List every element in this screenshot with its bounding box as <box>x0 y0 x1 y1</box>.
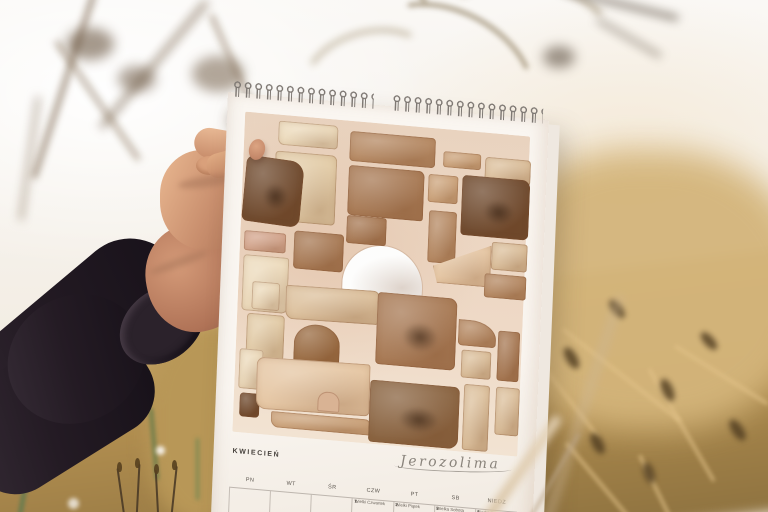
watercolor-shape <box>346 215 387 246</box>
watercolor-shape <box>462 384 491 452</box>
watercolor-shape <box>496 330 520 382</box>
watercolor-shape <box>349 131 436 169</box>
month-title: KWIECIEŃ <box>232 448 280 459</box>
seed-cluster <box>118 66 156 92</box>
watercolor-shape <box>484 273 527 301</box>
watercolor-shape <box>285 285 379 326</box>
day-cell: 1 Wielki Czwartek <box>352 498 394 512</box>
day-cell <box>311 495 353 512</box>
notch-shape <box>317 391 340 413</box>
watercolor-shape <box>244 230 287 254</box>
foreground-seed-head <box>117 462 122 472</box>
watercolor-shape <box>256 357 371 417</box>
watercolor-shape <box>293 230 344 272</box>
watercolor-shape <box>251 281 280 311</box>
artwork-signature: Jerozolima <box>400 453 500 473</box>
foreground-seed-head <box>172 460 177 470</box>
watercolor-shape <box>347 165 425 222</box>
day-cell: 2 Wielki Piątek <box>393 502 435 512</box>
photo-scene: KWIECIEŃ Jerozolima PN WT ŚR CZW PT SB N… <box>0 0 768 512</box>
seed-cluster <box>543 46 575 68</box>
bokeh-highlight <box>68 498 79 509</box>
day-cell <box>228 488 271 512</box>
calendar-artwork <box>232 112 530 457</box>
foreground-seed-head <box>135 458 140 468</box>
watercolor-shape <box>241 154 305 228</box>
watercolor-shape <box>428 174 459 205</box>
day-cell <box>270 491 312 512</box>
watercolor-shape <box>491 242 528 273</box>
watercolor-shape <box>460 349 491 380</box>
watercolor-shape <box>458 319 497 348</box>
watercolor-shape <box>494 386 520 436</box>
watercolor-shape <box>375 292 458 371</box>
watercolor-shape <box>368 380 460 450</box>
watercolor-shape <box>460 175 530 241</box>
watercolor-shape <box>278 121 339 150</box>
green-grass-stem <box>196 438 199 500</box>
foreground-seed-head <box>154 464 159 474</box>
bokeh-highlight <box>156 446 165 455</box>
watercolor-shape <box>443 151 481 170</box>
watercolor-shape <box>427 210 457 264</box>
seed-cluster <box>66 28 114 60</box>
